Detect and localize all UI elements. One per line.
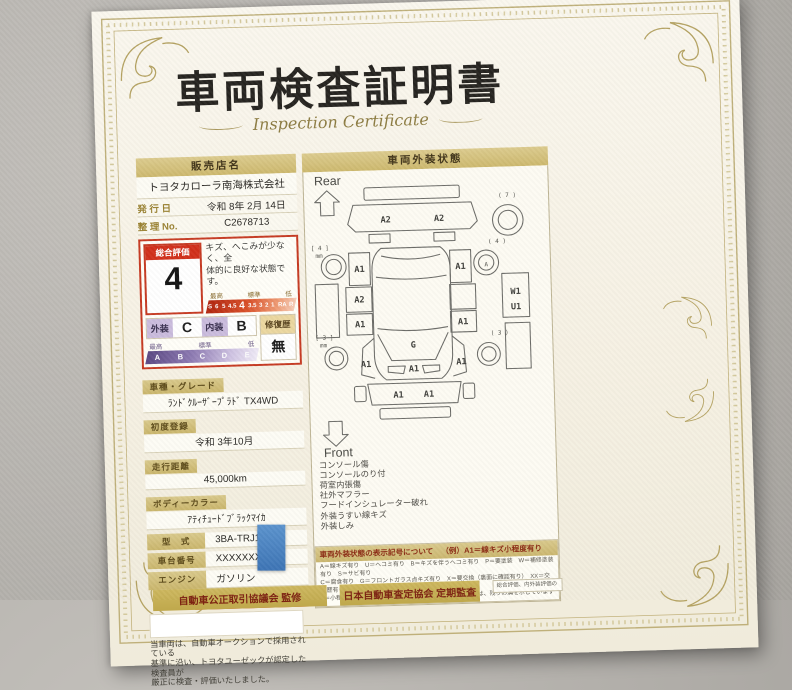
diagram-mark: A1: [393, 390, 404, 400]
diagram-mark: A1: [458, 317, 469, 327]
grade-row: 外装 C 内装 B: [146, 315, 258, 339]
scale-value: R: [289, 301, 294, 307]
overall-rating-value: 4: [146, 259, 201, 299]
issue-date-label: 発 行 日: [137, 199, 195, 215]
field-label: ボディーカラー: [146, 495, 226, 511]
grade-letter: C: [200, 351, 206, 360]
scale-value: 2: [265, 302, 269, 308]
interior-grade-value: B: [227, 316, 256, 336]
diagram-mark: A1: [354, 265, 365, 275]
front-arrow-icon: [323, 421, 349, 447]
subtitle-text: Inspection Certificate: [253, 110, 430, 134]
exterior-condition-column: 車両外装状態 Rear: [302, 146, 561, 608]
diagram-mark: mm: [315, 253, 323, 260]
diagram-mark: U1: [511, 302, 522, 312]
diagram-mark: ( 3 ): [491, 329, 509, 337]
issue-date-value: 令和 8年 2月 14日: [195, 196, 297, 213]
grade-caption: 低: [248, 338, 255, 348]
certificate-paper: 車両検査証明書 Inspection Certificate 販売店名 トヨタカ…: [91, 0, 758, 666]
diagram-mark: A2: [380, 215, 391, 225]
appraisal-association-box: 日本自動車査定協会 定期監査: [340, 580, 481, 605]
grade-scale: ABCDE: [145, 348, 259, 364]
scale-value: 5: [222, 303, 226, 309]
field-label: エンジン: [148, 570, 207, 590]
scale-value: RA: [278, 301, 287, 307]
repair-history: 修復歴 無: [259, 314, 296, 361]
rear-label: Rear: [314, 174, 341, 189]
field-label: 走行距離: [145, 459, 197, 475]
diagram-mark: G: [411, 341, 416, 351]
field-value: ﾗﾝﾄﾞｸﾙｰｻﾞｰﾌﾟﾗﾄﾞ TX4WD: [143, 390, 303, 413]
diagram-mark: ( 4 ): [488, 238, 506, 246]
field-row: 走行距離 45,000km: [145, 452, 306, 490]
grade-letter: A: [155, 353, 161, 362]
grade-caption: 最高: [149, 340, 162, 350]
grade-caption: 標準: [198, 339, 211, 349]
rating-comment: キズ、へこみが少なく、全 体的に良好な状態です。: [205, 240, 294, 288]
photo-background: { "title": "車両検査証明書", "subtitle": "Inspe…: [0, 0, 792, 600]
scale-value: 1: [271, 302, 275, 308]
exterior-panel: Rear: [302, 165, 561, 608]
field-label: 型 式: [147, 532, 205, 550]
car-diagram: Rear: [303, 165, 555, 458]
grade-letter: B: [177, 352, 183, 361]
diagram-mark: mm: [320, 342, 328, 349]
scale-value: 3.5: [248, 302, 257, 308]
field-label: 車台番号: [147, 551, 205, 569]
privacy-sticker: [257, 525, 285, 571]
disclaimer: 当車両は、自動車オークションで採用されている基準に沿い、トヨタユーゼックが認定し…: [150, 635, 311, 688]
flourish-left-icon: [199, 120, 243, 130]
scale-value: 4.5: [228, 303, 237, 309]
diagram-mark: ( 7 ): [498, 192, 516, 200]
diagram-mark: A1: [456, 357, 467, 367]
scale-caption: 最高: [210, 290, 223, 300]
field-row: 車種・グレード ﾗﾝﾄﾞｸﾙｰｻﾞｰﾌﾟﾗﾄﾞ TX4WD: [142, 372, 303, 413]
condition-notes: コンソール傷コンソールのり付荷室内張傷社外マフラーフードインシュレーター破れ外装…: [312, 451, 558, 533]
reference-number-value: C2678713: [196, 216, 298, 230]
diagram-mark: [ 3 ]: [315, 334, 333, 342]
exterior-grade-value: C: [173, 317, 202, 337]
diagram-mark: A2: [434, 214, 445, 224]
diagram-mark: A1: [424, 390, 435, 400]
overall-rating-box: 総合評価 4 キズ、へこみが少なく、全 体的に良好な状態です。 最高標準低 S6…: [138, 235, 302, 369]
exterior-grade-label: 外装: [147, 318, 174, 338]
scale-value: 3: [259, 302, 263, 308]
repair-history-value: 無: [260, 333, 297, 360]
repair-history-label: 修復歴: [259, 314, 296, 335]
legend-example: （例）A1＝線キズ小程度有り: [441, 542, 542, 556]
field-label: 車種・グレード: [142, 378, 223, 394]
legend-title: 車両外装状態の表示記号について: [319, 546, 433, 560]
field-label: 初度登録: [144, 419, 196, 435]
diagram-mark: A: [484, 261, 488, 268]
diagram-mark: A2: [354, 295, 365, 305]
flourish-right-icon: [439, 113, 483, 123]
car-diagram-area: Rear: [303, 165, 555, 458]
diagram-mark: [ 4 ]: [311, 245, 329, 253]
field-row: 初度登録 令和 3年10月: [143, 412, 304, 453]
reference-number-row: 整 理 No. C2678713: [138, 213, 298, 236]
front-label: Front: [324, 445, 354, 458]
field-value: 3BA-TRJ150W: [205, 529, 307, 548]
signature-box: [149, 609, 304, 638]
rating-scale: S654.543.5321RAR: [206, 297, 297, 313]
scale-caption: 低: [285, 288, 292, 298]
grade-letter: E: [244, 350, 249, 359]
scale-value: S: [209, 303, 213, 309]
interior-grade-label: 内装: [201, 317, 228, 337]
field-value: 令和 3年10月: [144, 430, 304, 453]
reference-number-label: 整 理 No.: [138, 217, 196, 233]
diagram-mark: A1: [355, 320, 366, 330]
scale-caption: 標準: [247, 289, 260, 299]
overall-rating: 総合評価 4: [143, 243, 203, 315]
scale-value: 4: [239, 300, 245, 311]
diagram-mark: W1: [510, 287, 521, 297]
rear-arrow-icon: [314, 191, 340, 217]
footer-note: 総合評価、内外装評価の: [492, 578, 562, 593]
scale-value: 6: [215, 303, 219, 309]
grade-letter: D: [222, 351, 228, 360]
diagram-mark: A1: [361, 360, 372, 370]
diagram-mark: A1: [409, 364, 420, 374]
diagram-mark: A1: [455, 262, 466, 272]
